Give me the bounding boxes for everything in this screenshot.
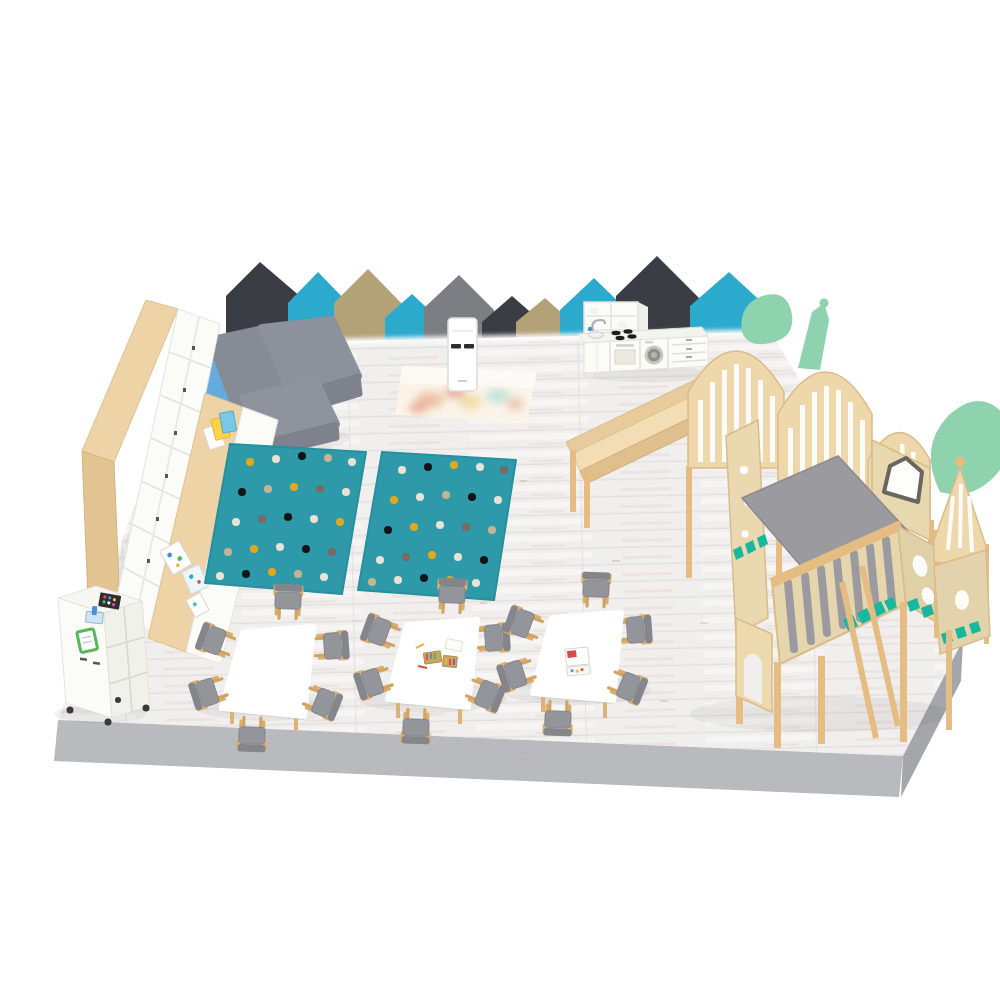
trolley-side-shelves <box>104 601 150 718</box>
wardrobe-side-wood <box>82 451 120 610</box>
projector-lens-left <box>451 344 461 349</box>
scene-canvas <box>0 0 1000 1000</box>
kitchen-oven-window <box>615 350 635 364</box>
picture-book <box>565 647 591 676</box>
kitchen-sink <box>589 332 604 338</box>
castle-arch-leg-panel <box>736 618 772 712</box>
rug-right <box>358 452 516 600</box>
projector-lens-right <box>464 344 474 349</box>
kitchen-cup <box>588 327 592 331</box>
art-trolley <box>58 586 150 726</box>
pentagon-window <box>884 458 922 502</box>
floor-projector <box>448 318 477 391</box>
trolley-green-board <box>77 629 98 653</box>
mint-leaf-right <box>931 401 1000 494</box>
castle-flag <box>798 299 829 371</box>
rug-left <box>205 444 366 594</box>
render-stage <box>0 0 1000 1000</box>
